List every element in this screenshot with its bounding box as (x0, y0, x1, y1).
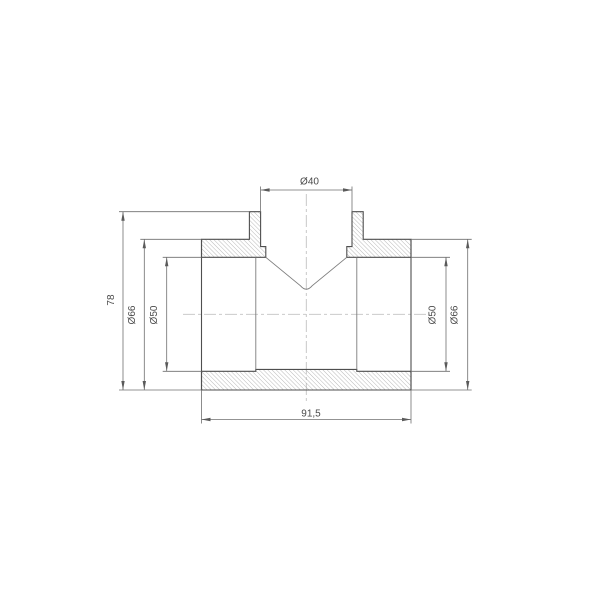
dimension-body-length: 91,5 (202, 390, 412, 424)
drawing-canvas: Ø40 78 Ø66 Ø50 (0, 0, 600, 600)
arrowhead-bottom (444, 362, 447, 371)
arrowhead-left (202, 418, 211, 421)
arrowhead-top (466, 239, 469, 248)
tee-fitting-drawing: Ø40 78 Ø66 Ø50 (0, 0, 600, 600)
dim-label-total-height: 78 (106, 294, 117, 306)
arrowhead-right (402, 418, 411, 421)
wall-section-right (347, 212, 411, 258)
wall-section-bottom (202, 369, 412, 390)
arrowhead-bottom (121, 381, 124, 390)
arrowhead-bottom (165, 362, 168, 371)
dim-label-outer-diameter-left: Ø66 (127, 305, 138, 324)
dim-label-branch-diameter: Ø40 (300, 177, 319, 188)
wall-section-left (202, 212, 266, 258)
dimension-total-height: 78 (106, 212, 249, 390)
arrowhead-right (343, 188, 352, 191)
dim-label-inner-diameter-right: Ø50 (428, 305, 439, 324)
dim-label-inner-diameter-left: Ø50 (149, 305, 160, 324)
dim-label-body-length: 91,5 (301, 409, 321, 420)
arrowhead-top (444, 257, 447, 266)
arrowhead-left (261, 188, 270, 191)
arrowhead-top (165, 257, 168, 266)
arrowhead-top (143, 239, 146, 248)
arrowhead-top (121, 212, 124, 221)
arrowhead-bottom (143, 381, 146, 390)
arrowhead-bottom (466, 381, 469, 390)
dim-label-outer-diameter-right: Ø66 (450, 305, 461, 324)
